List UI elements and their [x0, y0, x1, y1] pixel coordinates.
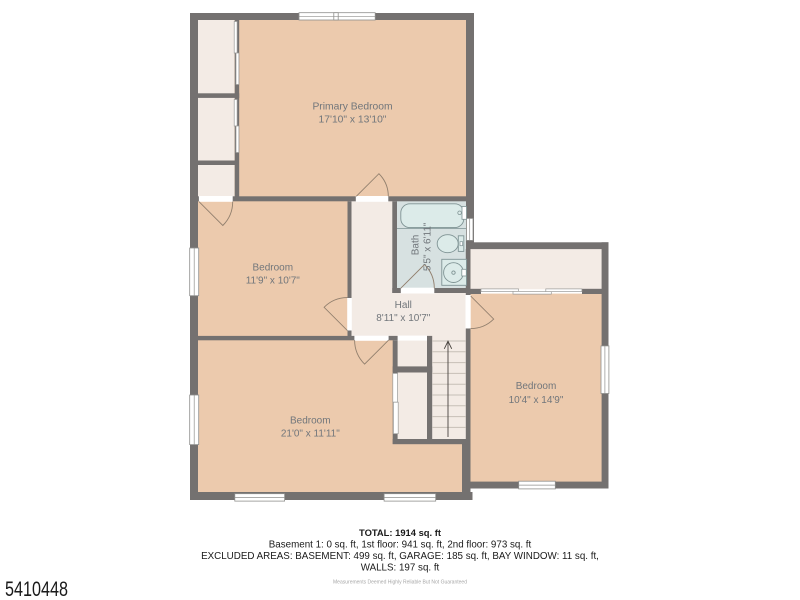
svg-text:Primary Bedroom: Primary Bedroom — [312, 101, 392, 112]
svg-text:8'11" x 10'7": 8'11" x 10'7" — [376, 313, 431, 324]
svg-text:17'10" x 13'10": 17'10" x 13'10" — [319, 115, 387, 126]
svg-text:11'9" x 10'7": 11'9" x 10'7" — [246, 276, 301, 287]
svg-text:Basement 1: 0 sq. ft, 1st floo: Basement 1: 0 sq. ft, 1st floor: 941 sq.… — [269, 540, 532, 551]
svg-text:Bedroom: Bedroom — [290, 415, 331, 426]
svg-text:Bedroom: Bedroom — [253, 262, 294, 273]
svg-text:5'5" x 6'11": 5'5" x 6'11" — [422, 222, 433, 271]
svg-text:Measurements Deemed Highly Rel: Measurements Deemed Highly Reliable But … — [333, 580, 467, 586]
svg-text:Bath: Bath — [410, 235, 421, 256]
svg-text:5410448: 5410448 — [5, 578, 68, 600]
svg-text:WALLS: 197 sq. ft: WALLS: 197 sq. ft — [361, 562, 440, 573]
svg-text:TOTAL: 1914 sq. ft: TOTAL: 1914 sq. ft — [359, 527, 441, 538]
svg-text:EXCLUDED AREAS: BASEMENT: 499: EXCLUDED AREAS: BASEMENT: 499 sq. ft, GA… — [201, 551, 599, 562]
svg-text:Hall: Hall — [395, 300, 412, 311]
svg-text:10'4" x 14'9": 10'4" x 14'9" — [509, 395, 564, 406]
svg-text:21'0" x 11'11": 21'0" x 11'11" — [281, 429, 340, 440]
svg-text:Bedroom: Bedroom — [516, 381, 557, 392]
